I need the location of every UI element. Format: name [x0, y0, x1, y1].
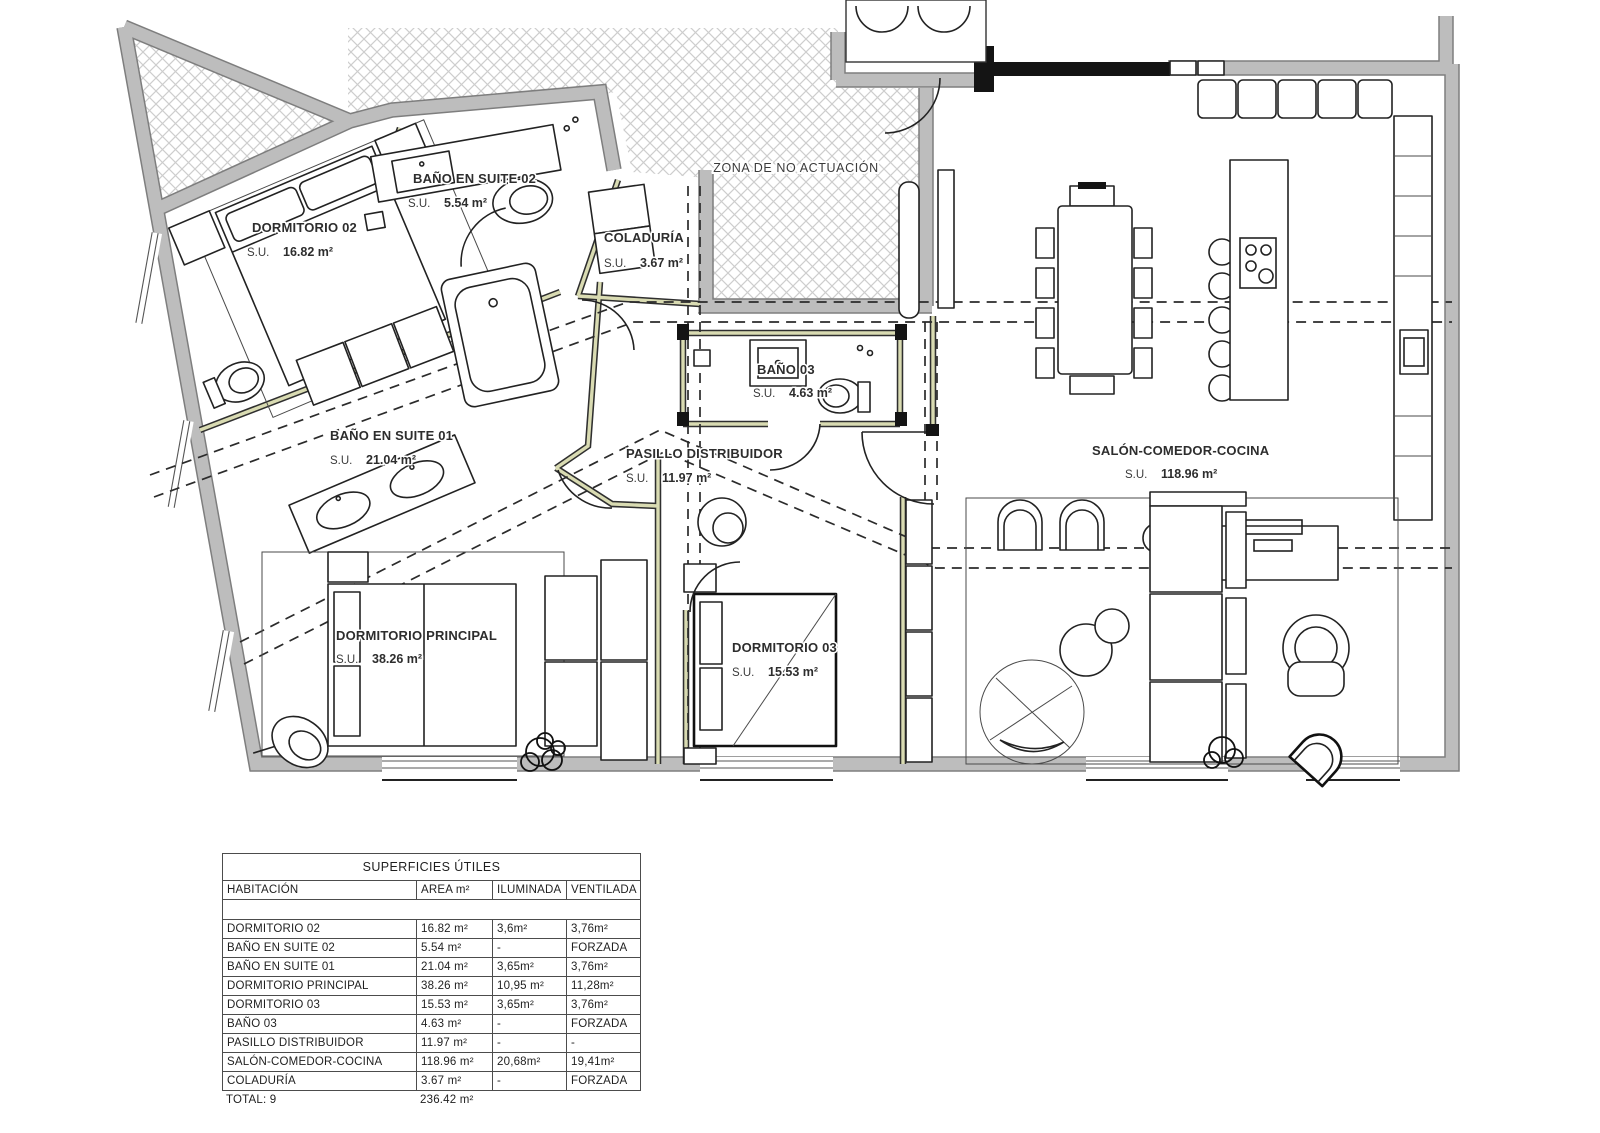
living-room	[966, 492, 1398, 786]
cell: 3,76m²	[567, 958, 641, 977]
cell: 3,65m²	[493, 996, 567, 1015]
cell: -	[493, 939, 567, 958]
top-structural-bar	[974, 46, 1170, 92]
dormitorio-principal-furniture	[253, 552, 647, 789]
cell: -	[493, 1034, 567, 1053]
svg-text:21.04 m²: 21.04 m²	[366, 453, 416, 467]
svg-text:S.U.: S.U.	[330, 455, 352, 467]
cell: 10,95 m²	[493, 977, 567, 996]
cell: 3.67 m²	[417, 1072, 493, 1091]
table-header-row: HABITACIÓN AREA m² ILUMINADA VENTILADA	[223, 881, 641, 900]
label-bano-suite-02: BAÑO EN SUITE 02	[413, 171, 536, 186]
cell: 3,76m²	[567, 996, 641, 1015]
cell: DORMITORIO 03	[223, 996, 417, 1015]
svg-text:S.U.: S.U.	[247, 247, 269, 259]
table-row: SALÓN-COMEDOR-COCINA118.96 m²20,68m²19,4…	[223, 1053, 641, 1072]
cell: DORMITORIO PRINCIPAL	[223, 977, 417, 996]
cell: -	[493, 1072, 567, 1091]
cell: 11.97 m²	[417, 1034, 493, 1053]
cell: FORZADA	[567, 1072, 641, 1091]
cell: SALÓN-COMEDOR-COCINA	[223, 1053, 417, 1072]
cell: 3,76m²	[567, 920, 641, 939]
svg-text:118.96 m²: 118.96 m²	[1161, 467, 1217, 481]
svg-text:38.26 m²: 38.26 m²	[372, 652, 422, 666]
floor-plan-drawing: ZONA DE NO ACTUACIÓN DORMITORIO 02 S.U. …	[0, 0, 1600, 833]
svg-text:5.54 m²: 5.54 m²	[444, 196, 487, 210]
cell: 15.53 m²	[417, 996, 493, 1015]
label-salon: SALÓN-COMEDOR-COCINA	[1092, 443, 1270, 458]
total-area: 236.42 m²	[420, 1094, 474, 1106]
svg-text:11.97 m²: 11.97 m²	[662, 471, 711, 485]
svg-text:S.U.: S.U.	[626, 473, 648, 485]
surfaces-table: SUPERFICIES ÚTILES HABITACIÓN AREA m² IL…	[222, 853, 640, 1106]
svg-text:S.U.: S.U.	[753, 388, 775, 400]
cell: -	[493, 1015, 567, 1034]
svg-text:S.U.: S.U.	[1125, 469, 1147, 481]
label-pasillo: PASILLO DISTRIBUIDOR	[626, 446, 783, 461]
left-windows	[132, 231, 234, 712]
table-row: DORMITORIO 0216.82 m²3,6m²3,76m²	[223, 920, 641, 939]
label-bano-03: BAÑO 03	[757, 362, 815, 377]
svg-text:S.U.: S.U.	[604, 258, 626, 270]
svg-text:3.67 m²: 3.67 m²	[640, 256, 683, 270]
cell: 19,41m²	[567, 1053, 641, 1072]
floorplan-page: ZONA DE NO ACTUACIÓN DORMITORIO 02 S.U. …	[0, 0, 1600, 1133]
cell: 20,68m²	[493, 1053, 567, 1072]
header-iluminada: ILUMINADA	[493, 881, 567, 900]
cell: BAÑO EN SUITE 02	[223, 939, 417, 958]
label-dormitorio-03: DORMITORIO 03	[732, 640, 837, 655]
label-coladuria: COLADURÍA	[604, 230, 684, 245]
table-row: COLADURÍA3.67 m²-FORZADA	[223, 1072, 641, 1091]
cell: 4.63 m²	[417, 1015, 493, 1034]
header-area: AREA m²	[417, 881, 493, 900]
table-total-row: TOTAL: 9 236.42 m²	[222, 1091, 640, 1106]
cell: 38.26 m²	[417, 977, 493, 996]
header-ventilada: VENTILADA	[567, 881, 641, 900]
table-gap-row	[223, 900, 641, 920]
zona-label: ZONA DE NO ACTUACIÓN	[713, 160, 879, 175]
total-label: TOTAL: 9	[226, 1094, 420, 1106]
upper-unit-stove	[846, 0, 986, 62]
cell: DORMITORIO 02	[223, 920, 417, 939]
table-row: DORMITORIO PRINCIPAL38.26 m²10,95 m²11,2…	[223, 977, 641, 996]
cell: PASILLO DISTRIBUIDOR	[223, 1034, 417, 1053]
cell: 21.04 m²	[417, 958, 493, 977]
table-row: BAÑO EN SUITE 0121.04 m²3,65m²3,76m²	[223, 958, 641, 977]
table-title: SUPERFICIES ÚTILES	[223, 854, 641, 881]
cell: 3,65m²	[493, 958, 567, 977]
cell: BAÑO EN SUITE 01	[223, 958, 417, 977]
header-habitacion: HABITACIÓN	[223, 881, 417, 900]
table-row: BAÑO EN SUITE 025.54 m²-FORZADA	[223, 939, 641, 958]
cell: 5.54 m²	[417, 939, 493, 958]
cell: COLADURÍA	[223, 1072, 417, 1091]
label-dormitorio-principal: DORMITORIO PRINCIPAL	[336, 628, 497, 643]
cell: -	[567, 1034, 641, 1053]
svg-text:15.53 m²: 15.53 m²	[768, 665, 818, 679]
cell: FORZADA	[567, 1015, 641, 1034]
cell: FORZADA	[567, 939, 641, 958]
table-row: DORMITORIO 0315.53 m²3,65m²3,76m²	[223, 996, 641, 1015]
cell: 11,28m²	[567, 977, 641, 996]
table-title-row: SUPERFICIES ÚTILES	[223, 854, 641, 881]
cell: 118.96 m²	[417, 1053, 493, 1072]
svg-text:S.U.: S.U.	[732, 667, 754, 679]
svg-text:4.63 m²: 4.63 m²	[789, 386, 832, 400]
table-row: BAÑO 034.63 m²-FORZADA	[223, 1015, 641, 1034]
cell: 16.82 m²	[417, 920, 493, 939]
svg-text:S.U.: S.U.	[336, 654, 358, 666]
svg-text:S.U.: S.U.	[408, 198, 430, 210]
svg-text:16.82 m²: 16.82 m²	[283, 245, 333, 259]
label-dormitorio-02: DORMITORIO 02	[252, 220, 357, 235]
cell: BAÑO 03	[223, 1015, 417, 1034]
label-bano-suite-01: BAÑO EN SUITE 01	[330, 428, 453, 443]
cell: 3,6m²	[493, 920, 567, 939]
table-row: PASILLO DISTRIBUIDOR11.97 m²--	[223, 1034, 641, 1053]
